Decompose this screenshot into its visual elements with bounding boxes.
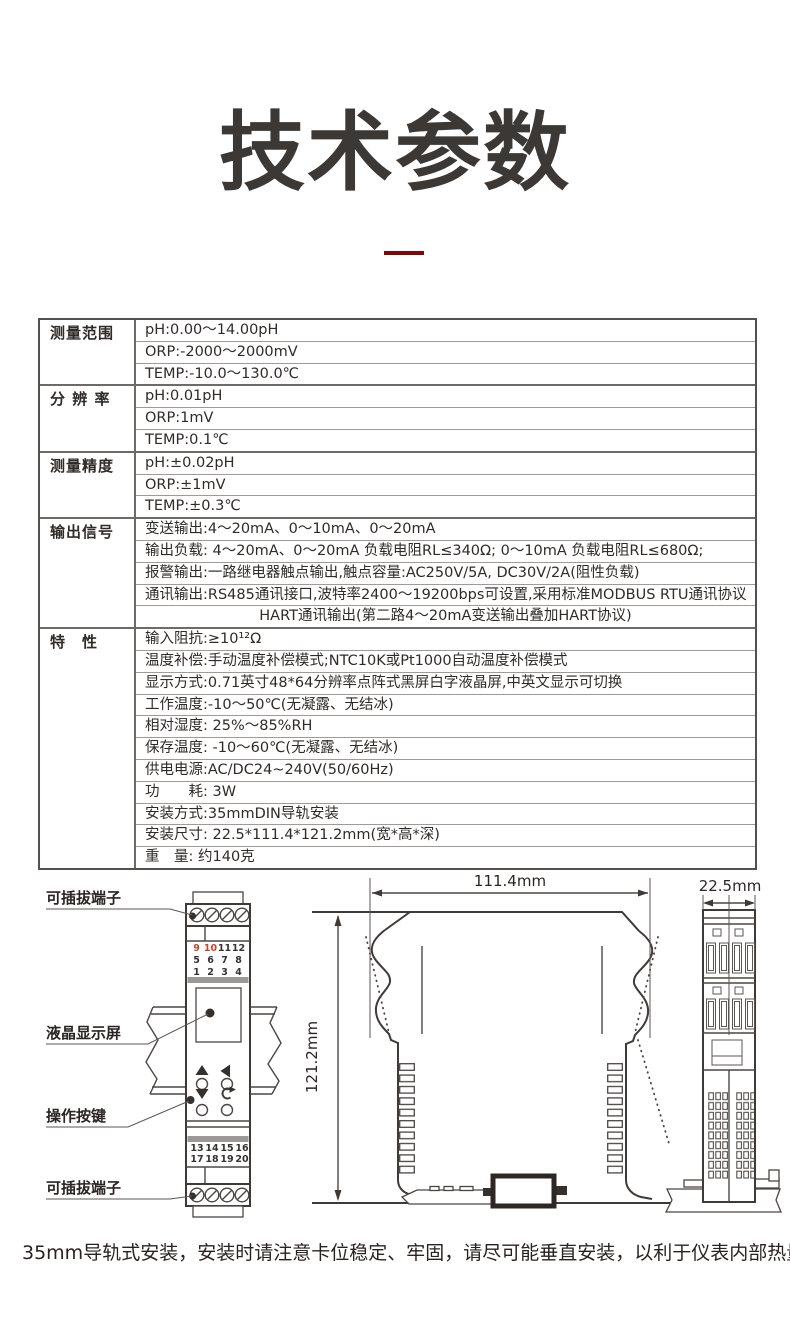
spec-row: pH:0.00～14.00pH	[136, 320, 755, 341]
spec-group-label: 输出信号	[40, 519, 136, 627]
side-dim-label: 22.5mm	[699, 877, 762, 895]
spec-group-label: 分 辨 率	[40, 386, 136, 450]
side-vent-grid-right	[736, 1092, 754, 1180]
spec-row: ORP:1mV	[136, 407, 755, 429]
spec-row: TEMP:0.1℃	[136, 429, 755, 451]
spec-row: 工作温度:-10～50℃(无凝露、无结冰)	[136, 694, 755, 716]
spec-row: 保存温度: -10～60℃(无凝露、无结冰)	[136, 737, 755, 759]
spec-group: 测量精度pH:±0.02pHORP:±1mVTEMP:±0.3℃	[40, 451, 755, 517]
width-dimension: 111.4mm	[370, 872, 650, 1038]
spec-row: 通讯输出:RS485通讯接口,波特率2400～19200bps可设置,采用标准M…	[136, 584, 755, 606]
label-buttons: 操作按键	[46, 1107, 106, 1125]
spec-row: 相对湿度: 25%～85%RH	[136, 715, 755, 737]
spec-row: 功 耗: 3W	[136, 781, 755, 803]
spec-row: 报警输出:一路继电器触点输出,触点容量:AC250V/5A, DC30V/2A(…	[136, 562, 755, 584]
spec-row: ORP:±1mV	[136, 474, 755, 496]
dimension-diagrams: 910111256781234 1314151617181920	[0, 860, 790, 1232]
spec-group-label: 特 性	[40, 629, 136, 868]
terminal-number: 6	[207, 955, 214, 966]
spec-row: HART通讯输出(第二路4～20mA变送输出叠加HART协议)	[136, 605, 755, 627]
spec-row: 温度补偿:手动温度补偿模式;NTC10K或Pt1000自动温度补偿模式	[136, 650, 755, 672]
terminal-number: 13	[190, 1143, 203, 1154]
terminal-number: 5	[193, 955, 200, 966]
terminal-number: 15	[220, 1143, 233, 1154]
side-view-drawing: 22.5mm	[666, 877, 781, 1212]
terminal-number: 3	[221, 967, 228, 978]
spec-row: 输入阻抗:≥10¹²Ω	[136, 629, 755, 650]
terminal-number: 4	[235, 967, 242, 978]
spec-row: 供电电源:AC/DC24~240V(50/60Hz)	[136, 759, 755, 781]
spec-row: 变送输出:4～20mA、0～10mA、0～20mA	[136, 519, 755, 540]
front-view-drawing: 910111256781234 1314151617181920	[46, 889, 281, 1217]
terminal-number: 10	[204, 943, 218, 954]
title-accent-underline	[384, 251, 424, 255]
spec-row: 安装尺寸: 22.5*111.4*121.2mm(宽*高*深)	[136, 824, 755, 846]
terminal-number: 7	[221, 955, 228, 966]
terminal-number: 2	[207, 967, 214, 978]
spec-group-label: 测量精度	[40, 453, 136, 517]
terminal-number: 20	[235, 1154, 249, 1165]
spec-group: 分 辨 率pH:0.01pHORP:1mVTEMP:0.1℃	[40, 384, 755, 450]
installation-note: 35mm导轨式安装，安装时请注意卡位稳定、牢固，请尽可能垂直安装，以利于仪表内部…	[22, 1238, 782, 1265]
spec-row: pH:0.01pH	[136, 386, 755, 407]
lcd-callout-dot	[206, 1009, 215, 1018]
lcd-screen	[196, 988, 241, 1042]
vent-slots-right	[607, 1063, 623, 1175]
spec-group: 输出信号变送输出:4～20mA、0～10mA、0～20mA输出负载: 4～20m…	[40, 517, 755, 627]
terminal-numbers-bottom: 1314151617181920	[190, 1143, 249, 1165]
terminal-number: 18	[205, 1154, 219, 1165]
height-dimension: 121.2mm	[303, 915, 342, 1201]
terminal-number: 17	[190, 1154, 203, 1165]
width-dim-label: 111.4mm	[474, 872, 546, 890]
spec-row: ORP:-2000～2000mV	[136, 341, 755, 363]
terminal-number: 1	[193, 967, 200, 978]
device-top-cap	[193, 892, 243, 904]
terminal-number: 19	[220, 1154, 233, 1165]
spec-row: 显示方式:0.71英寸48*64分辨率点阵式黑屏白字液晶屏,中英文显示可切换	[136, 672, 755, 694]
spec-group: 测量范围pH:0.00～14.00pHORP:-2000～2000mVTEMP:…	[40, 320, 755, 384]
spec-row: 安装方式:35mmDIN导轨安装	[136, 803, 755, 825]
label-lcd: 液晶显示屏	[46, 1024, 121, 1042]
terminal-number: 8	[235, 955, 242, 966]
vent-slots-left	[399, 1063, 415, 1175]
label-top-terminal: 可插拔端子	[46, 889, 121, 907]
terminal-number: 14	[205, 1143, 219, 1154]
spec-row: 输出负载: 4～20mA、0～20mA 负载电阻RL≤340Ω; 0～10mA …	[136, 540, 755, 562]
din-clip	[483, 1176, 567, 1206]
front-view-callouts: 可插拔端子 液晶显示屏 操作按键 可插拔端子	[46, 889, 208, 1199]
side-vent-grid-left	[708, 1092, 728, 1180]
spec-row: TEMP:-10.0～130.0℃	[136, 363, 755, 385]
label-bottom-terminal: 可插拔端子	[46, 1179, 121, 1197]
height-dim-label: 121.2mm	[303, 1021, 321, 1093]
terminal-number: 11	[218, 943, 231, 954]
spec-row: TEMP:±0.3℃	[136, 495, 755, 517]
rail-latch	[402, 1187, 497, 1205]
terminal-number: 16	[235, 1143, 249, 1154]
terminal-number: 12	[232, 943, 245, 954]
spec-row: pH:±0.02pH	[136, 453, 755, 474]
outline-view-drawing: 111.4mm 121.2mm	[303, 872, 680, 1206]
spec-group-label: 测量范围	[40, 320, 136, 384]
page-title: 技术参数	[0, 104, 790, 203]
spec-table: 测量范围pH:0.00～14.00pHORP:-2000～2000mVTEMP:…	[38, 318, 757, 870]
terminal-number: 9	[193, 943, 200, 954]
spec-group: 特 性输入阻抗:≥10¹²Ω温度补偿:手动温度补偿模式;NTC10K或Pt100…	[40, 627, 755, 868]
buttons-callout-dot	[187, 1096, 195, 1104]
device-bottom-cap	[193, 1206, 243, 1217]
